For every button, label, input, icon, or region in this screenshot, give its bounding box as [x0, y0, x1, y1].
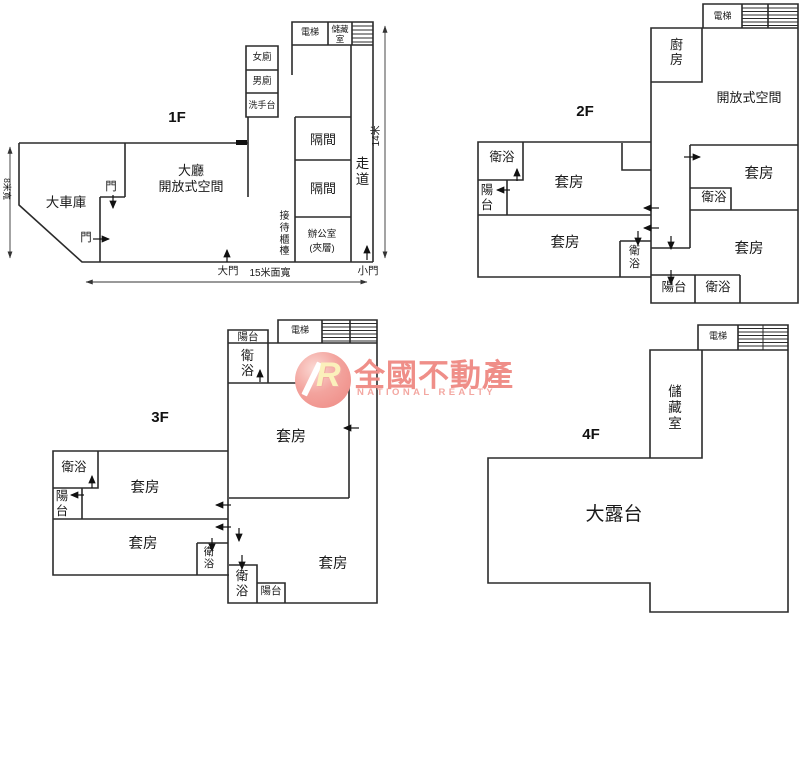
floor3-bath-top-label: 衛浴	[240, 348, 255, 379]
floor2-suite-upper-right-label: 套房	[736, 166, 782, 183]
floor1-lobby-label: 大廳	[148, 163, 234, 178]
floor2-elevator-label: 電梯	[703, 11, 742, 22]
floor1-openspace-label: 開放式空間	[148, 179, 234, 194]
floor2-door-arrows	[497, 157, 700, 284]
floor1-reception-label: 接待櫃檯	[279, 211, 290, 258]
door-marker	[236, 140, 247, 145]
floor1-office-line2: (夾層)	[309, 240, 334, 254]
floor4-elevator-label: 電梯	[698, 331, 738, 342]
floor1-partition2-label: 隔間	[299, 181, 347, 196]
floor1-label: 1F	[160, 109, 194, 127]
floor2-bath-right-label: 衛浴	[695, 190, 733, 205]
floor2-suite-upper-left-label: 套房	[546, 175, 592, 192]
floor3-elevator-label: 電梯	[279, 325, 321, 336]
floor1-small-door-label: 小門	[354, 265, 382, 277]
floor1-office-line1: 辦公室	[308, 226, 337, 240]
logo-letter: R	[316, 356, 341, 395]
floor1-main-door-label: 大門	[214, 265, 242, 277]
floorplan-canvas: 1F 電梯 儲藏室 女廁 男廁 洗手台 大廳 開放式空間 大車庫 門 門 隔間 …	[0, 0, 800, 759]
floor3-balcony-top-label: 陽台	[230, 331, 266, 343]
floor2-kitchen-label: 廚房	[669, 37, 684, 68]
floor1-toilet-female-label: 女廁	[246, 52, 278, 63]
floor3-bath-left-label: 衛浴	[55, 460, 93, 475]
floor2-bath-left-label: 衛浴	[484, 150, 520, 165]
floor1-door-b-label: 門	[78, 232, 94, 246]
floor3-label: 3F	[143, 409, 177, 427]
floor3-bath-center1-label: 衛浴	[203, 546, 215, 571]
floor4-label: 4F	[574, 426, 608, 444]
floor1-partition1-label: 隔間	[299, 132, 347, 147]
watermark-brand-english: NATIONAL REALTY	[357, 387, 496, 398]
floor3-suite-main-label: 套房	[264, 428, 318, 446]
floor4-walls	[488, 325, 788, 612]
floor1-toilet-male-label: 男廁	[246, 76, 278, 87]
floor2-openspace-label: 開放式空間	[708, 90, 790, 105]
floor1-garage-label: 大車庫	[40, 195, 92, 211]
floor3-balcony-left-label: 陽台	[55, 489, 69, 519]
floor2-balcony-left-label: 陽台	[480, 183, 494, 213]
floor2-suite-lower-right-label: 套房	[726, 241, 772, 258]
realty-watermark: R 全國不動產 NATIONAL REALTY	[283, 344, 528, 408]
realty-logo-circle: R	[295, 352, 351, 408]
floor4-terrace-label: 大露台	[566, 504, 662, 526]
floor1-office-label: 辦公室 (夾層)	[296, 226, 348, 254]
floor2-bath-bottom-label: 衛浴	[699, 280, 737, 295]
floor1-corridor-label: 走道	[355, 156, 370, 188]
floor2-suite-lower-left-label: 套房	[542, 235, 588, 252]
floor1-stairs-hatch	[352, 26, 373, 42]
floor2-balcony-bottom-label: 陽台	[656, 280, 692, 295]
floor1-height-dimension: 14米	[371, 116, 383, 156]
floor1-depth-dimension: 8米寬	[2, 169, 12, 209]
floor2-label: 2F	[568, 103, 602, 121]
floor4-storage-label: 儲藏室	[667, 384, 683, 432]
floor3-balcony-bottom-label: 陽台	[256, 585, 286, 597]
floor3-suite-lower-left-label: 套房	[120, 536, 166, 553]
floor2-bath-center-label: 衛浴	[628, 245, 641, 271]
floor1-width-dimension: 15米面寬	[242, 268, 298, 280]
floor3-suite-upper-left-label: 套房	[122, 480, 168, 497]
floor1-elevator-label: 電梯	[293, 27, 327, 38]
floor3-suite-lower-right-label: 套房	[310, 556, 356, 573]
floor1-door-a-label: 門	[103, 181, 119, 195]
floor1-storage-label: 儲藏室	[329, 24, 351, 44]
floor3-bath-center2-label: 衛浴	[235, 569, 249, 599]
floor1-washbasin-label: 洗手台	[246, 100, 278, 111]
floor4-stairs-hatch	[738, 325, 788, 350]
floor2-stairs-hatch	[742, 8, 798, 26]
